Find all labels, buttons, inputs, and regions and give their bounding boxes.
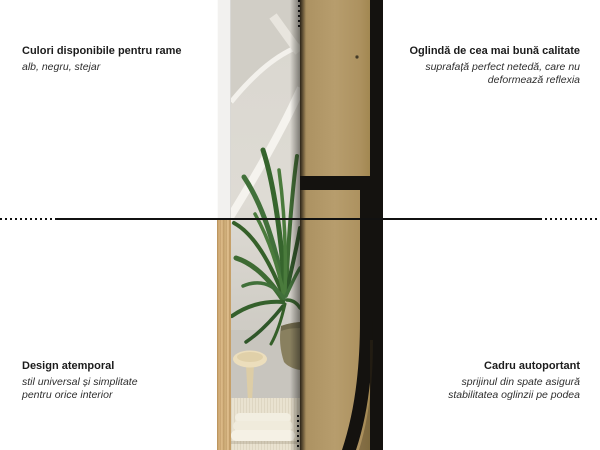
feature-subtitle-line: sprijinul din spate asigură (448, 376, 580, 389)
feature-subtitle-line: deformează reflexia (409, 74, 580, 87)
mirror-back-scene (300, 0, 383, 450)
mirror-frame-oak-variant (217, 219, 231, 450)
feature-block-timeless-design: Design atemporal stil universal și simpl… (22, 359, 138, 401)
feature-title: Oglindă de cea mai bună calitate (409, 44, 580, 58)
mirror-reflection-scene (231, 0, 300, 450)
divider-horizontal-dotted-right (540, 218, 600, 220)
divider-vertical-dotted-top (298, 0, 300, 28)
feature-subtitle-line: pentru orice interior (22, 389, 138, 402)
feature-subtitle-line: suprafață perfect netedă, care nu (409, 61, 580, 74)
feature-title: Culori disponibile pentru rame (22, 44, 182, 58)
divider-horizontal-solid (57, 218, 540, 220)
feature-subtitle-line: stil universal și simplitate (22, 376, 138, 389)
mirror-product-image (217, 0, 383, 450)
mirror-back-view (300, 0, 383, 450)
divider-vertical-dotted-bottom (297, 415, 299, 450)
mirror-feature-infographic: Culori disponibile pentru rame alb, negr… (0, 0, 600, 450)
feature-title: Design atemporal (22, 359, 138, 373)
feature-subtitle-line: stabilitatea oglinzii pe podea (448, 389, 580, 402)
mirror-glass (231, 0, 300, 450)
feature-title: Cadru autoportant (448, 359, 580, 373)
mirror-frame-white-variant (217, 0, 231, 219)
divider-horizontal-dotted-left (0, 218, 57, 220)
mirror-front-view (217, 0, 300, 450)
feature-block-freestanding-frame: Cadru autoportant sprijinul din spate as… (448, 359, 580, 401)
feature-block-frame-colors: Culori disponibile pentru rame alb, negr… (22, 44, 182, 74)
feature-block-mirror-quality: Oglindă de cea mai bună calitate suprafa… (409, 44, 580, 86)
feature-subtitle-line: alb, negru, stejar (22, 61, 182, 74)
stand-bracket (300, 176, 383, 190)
